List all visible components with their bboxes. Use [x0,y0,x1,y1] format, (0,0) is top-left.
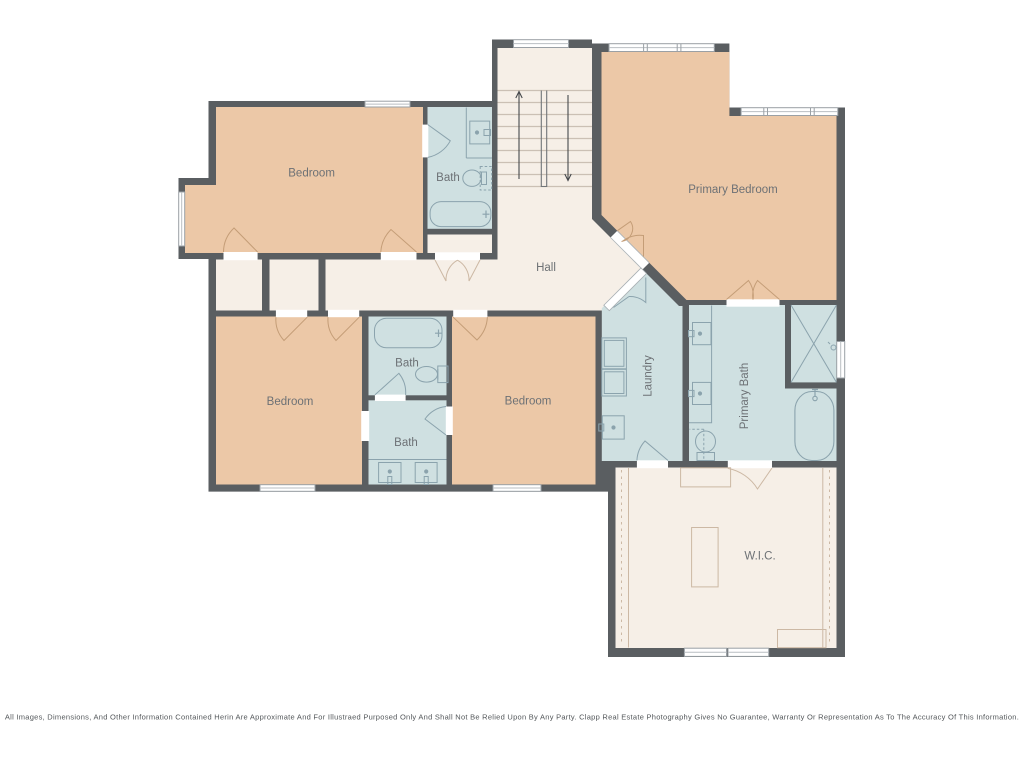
svg-text:Bedroom: Bedroom [505,396,552,408]
svg-text:All Images, Dimensions, And Ot: All Images, Dimensions, And Other Inform… [5,713,1019,722]
svg-text:Primary Bath: Primary Bath [739,363,751,429]
svg-text:Bath: Bath [394,437,418,449]
svg-text:Primary Bedroom: Primary Bedroom [688,184,777,196]
svg-text:Laundry: Laundry [643,355,655,397]
svg-text:Bedroom: Bedroom [267,396,314,408]
svg-text:Hall: Hall [536,262,556,274]
svg-text:Bedroom: Bedroom [288,168,335,180]
svg-text:Bath: Bath [395,358,419,370]
svg-text:W.I.C.: W.I.C. [744,551,775,563]
svg-text:Bath: Bath [436,172,460,184]
